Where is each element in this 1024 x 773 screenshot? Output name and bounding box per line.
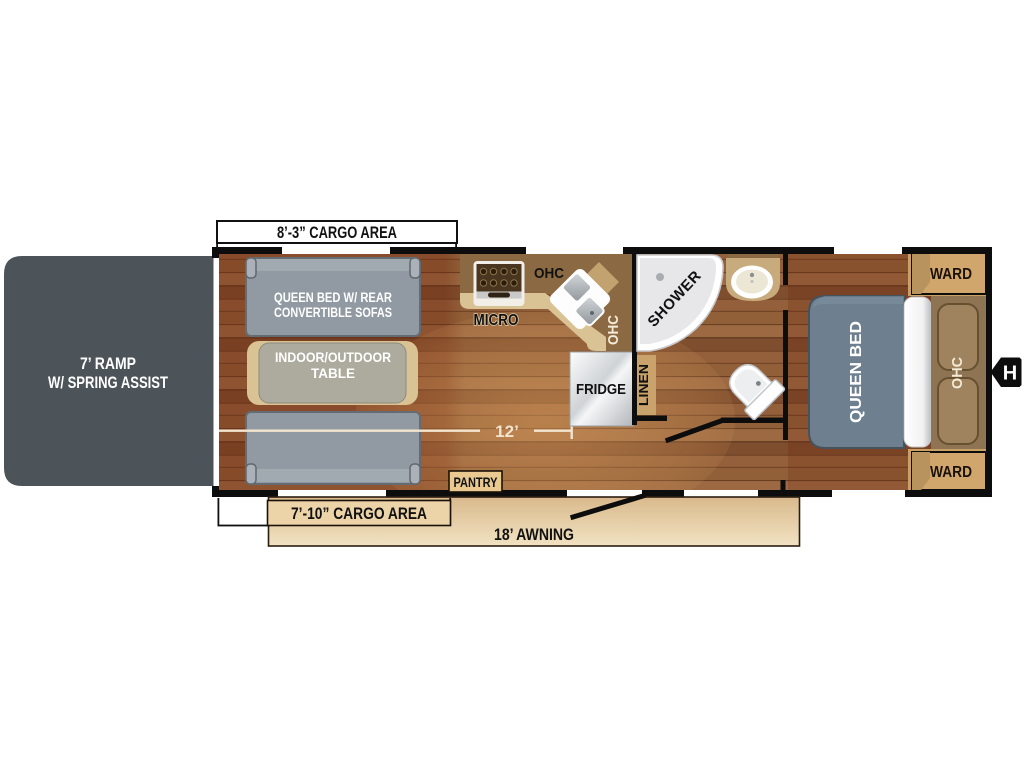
svg-text:8’-3” CARGO AREA: 8’-3” CARGO AREA [277, 223, 397, 242]
svg-text:W/ SPRING ASSIST: W/ SPRING ASSIST [48, 373, 168, 392]
svg-text:WARD: WARD [930, 266, 972, 283]
svg-text:OHC: OHC [534, 265, 564, 282]
svg-text:MICRO: MICRO [474, 312, 519, 329]
svg-text:18’ AWNING: 18’ AWNING [494, 525, 574, 544]
svg-text:QUEEN BED W/ REAR: QUEEN BED W/ REAR [274, 290, 392, 305]
svg-text:7’ RAMP: 7’ RAMP [80, 354, 136, 373]
svg-text:QUEEN BED: QUEEN BED [848, 321, 865, 423]
svg-text:OHC: OHC [949, 357, 966, 389]
svg-text:PANTRY: PANTRY [454, 474, 499, 490]
svg-text:7’-10” CARGO AREA: 7’-10” CARGO AREA [291, 504, 427, 523]
svg-text:LINEN: LINEN [637, 364, 651, 406]
svg-text:TABLE: TABLE [311, 366, 355, 381]
svg-text:H: H [1003, 363, 1017, 385]
svg-text:CONVERTIBLE SOFAS: CONVERTIBLE SOFAS [274, 305, 392, 320]
svg-text:OHC: OHC [605, 315, 622, 345]
svg-text:WARD: WARD [930, 464, 972, 481]
svg-text:12’: 12’ [495, 422, 519, 441]
svg-text:FRIDGE: FRIDGE [576, 382, 626, 398]
svg-text:INDOOR/OUTDOOR: INDOOR/OUTDOOR [275, 350, 391, 365]
